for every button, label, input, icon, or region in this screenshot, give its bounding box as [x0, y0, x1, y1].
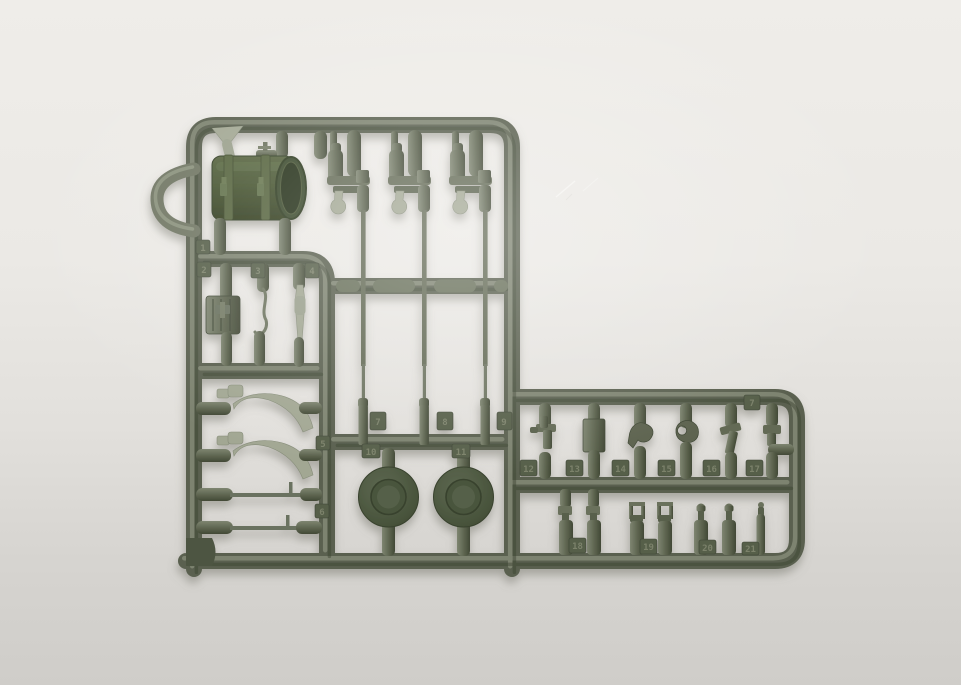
- svg-text:13: 13: [569, 465, 580, 475]
- svg-text:20: 20: [702, 544, 713, 554]
- svg-text:17: 17: [749, 465, 760, 475]
- part-number-tag: 12: [520, 460, 537, 476]
- part-number-tag: 19: [640, 539, 657, 554]
- stowage-box-part: [206, 263, 240, 366]
- part-number-tag: 7: [370, 412, 386, 430]
- ext-fitting-2-plate: [583, 403, 605, 479]
- part-number-tag: 18: [569, 538, 586, 553]
- tow-clevis-2: [657, 502, 673, 555]
- part-number-tag: 7: [744, 395, 760, 410]
- ext-fitting-5-bracket: [719, 403, 741, 479]
- ext-fitting-4-eye-hook: [676, 403, 699, 479]
- svg-text:5: 5: [320, 440, 325, 450]
- part-number-tag: 13: [566, 460, 583, 476]
- part-number-tag: 3: [251, 263, 265, 278]
- photo-background: 1 2 3 4 5 6 7 8 9 10 11 7 12 13 14 15 16…: [0, 0, 961, 685]
- svg-text:16: 16: [706, 465, 717, 475]
- part-number-tag: 20: [699, 540, 716, 554]
- part-number-tag: 14: [612, 460, 629, 476]
- svg-text:3: 3: [255, 267, 260, 277]
- svg-text:10: 10: [366, 448, 377, 458]
- ext-fitting-3-hook: [628, 403, 653, 479]
- svg-text:2: 2: [201, 266, 206, 276]
- tie-rod-2: [196, 515, 322, 534]
- tow-hook-wire-part: [254, 263, 269, 366]
- fuel-drum-part: [212, 126, 306, 255]
- sprue-photo: 1 2 3 4 5 6 7 8 9 10 11 7 12 13 14 15 16…: [0, 0, 961, 685]
- part-number-tag: 17: [746, 460, 763, 476]
- wheel-disc-2: [434, 448, 494, 556]
- part-number-tag: 4: [305, 263, 319, 278]
- svg-text:18: 18: [572, 542, 583, 552]
- part-number-tag: 9: [497, 412, 512, 430]
- svg-text:4: 4: [309, 267, 315, 277]
- svg-text:9: 9: [501, 418, 506, 428]
- fender-brace-1: [196, 385, 322, 432]
- svg-text:6: 6: [319, 508, 324, 518]
- part-number-tag: 10: [362, 444, 380, 458]
- part-number-tag: 6: [315, 504, 329, 518]
- part-number-tag: 2: [197, 262, 211, 277]
- svg-text:19: 19: [643, 543, 654, 553]
- backdrop-scratches: [556, 178, 598, 200]
- svg-text:7: 7: [749, 399, 754, 409]
- svg-text:1: 1: [200, 244, 205, 254]
- slender-barrel-part: [293, 263, 306, 367]
- svg-text:21: 21: [745, 545, 756, 555]
- suspension-link-2: [586, 489, 601, 555]
- svg-text:11: 11: [456, 448, 467, 458]
- fender-brace-2: [196, 432, 322, 479]
- svg-text:8: 8: [442, 418, 447, 428]
- corner-plate: [186, 538, 216, 566]
- sprue: 1 2 3 4 5 6 7 8 9 10 11 7 12 13 14 15 16…: [155, 122, 799, 572]
- part-number-tag: 11: [452, 444, 470, 458]
- svg-text:14: 14: [615, 465, 626, 475]
- part-number-tag: 21: [742, 542, 759, 555]
- part-number-tag: 5: [316, 436, 330, 450]
- svg-text:12: 12: [523, 465, 534, 475]
- part-number-tag: 16: [703, 460, 720, 476]
- svg-text:15: 15: [661, 465, 672, 475]
- svg-text:7: 7: [375, 418, 380, 428]
- wheel-disc-1: [359, 448, 419, 556]
- part-number-tag: 1: [196, 240, 210, 254]
- tie-rod-1: [196, 482, 322, 501]
- knob-bolt-2: [722, 504, 736, 556]
- part-number-tag: 8: [437, 412, 453, 430]
- part-number-tag: 15: [658, 460, 675, 476]
